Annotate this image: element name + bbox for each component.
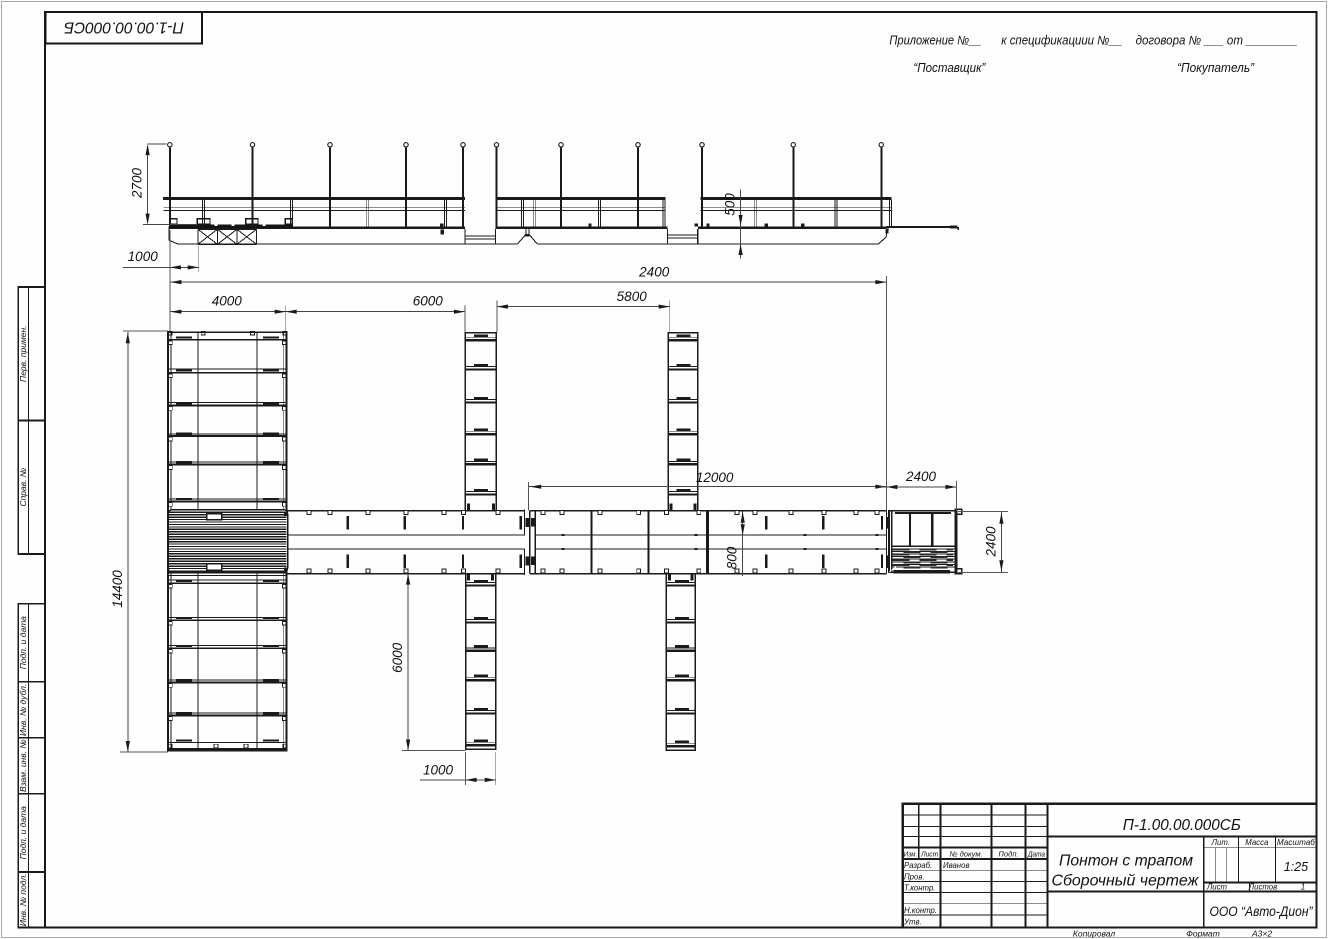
svg-text:Пров.: Пров. — [904, 872, 925, 881]
svg-text:№ докум.: № докум. — [949, 850, 982, 859]
svg-text:1000: 1000 — [128, 249, 159, 264]
svg-text:Листов: Листов — [1248, 883, 1277, 892]
svg-text:6000: 6000 — [390, 642, 405, 673]
svg-text:6000: 6000 — [413, 293, 444, 308]
svg-text:Дата: Дата — [1027, 850, 1045, 859]
svg-text:Разраб.: Разраб. — [904, 861, 932, 870]
svg-text:4000: 4000 — [212, 293, 243, 308]
svg-text:“Покупатель”: “Покупатель” — [1177, 61, 1255, 75]
svg-text:Лист: Лист — [920, 850, 938, 859]
svg-text:Лит.: Лит. — [1211, 838, 1230, 847]
svg-text:Масса: Масса — [1245, 838, 1269, 847]
svg-text:ООО “Авто-Дион”: ООО “Авто-Дион” — [1210, 903, 1314, 919]
svg-text:2400: 2400 — [638, 265, 670, 280]
svg-text:Копировал: Копировал — [1073, 929, 1115, 939]
svg-text:Инв. № дубл.: Инв. № дубл. — [18, 684, 28, 736]
svg-text:1: 1 — [1301, 883, 1305, 892]
svg-text:“Поставщик”: “Поставщик” — [913, 61, 986, 75]
svg-text:500: 500 — [723, 193, 738, 216]
svg-text:Приложение №__: Приложение №__ — [889, 33, 981, 47]
svg-text:14400: 14400 — [110, 570, 125, 608]
svg-text:Подп. и дата: Подп. и дата — [18, 616, 28, 669]
svg-text:А3×2: А3×2 — [1251, 929, 1272, 939]
svg-text:Взам. инв. №: Взам. инв. № — [18, 739, 28, 792]
svg-text:Инв. № подл.: Инв. № подл. — [18, 873, 28, 926]
svg-text:к спецификациии №__: к спецификациии №__ — [1001, 33, 1122, 47]
svg-text:5800: 5800 — [617, 289, 648, 304]
svg-text:2400: 2400 — [983, 526, 998, 558]
svg-text:П-1.00.00.000СБ: П-1.00.00.000СБ — [1123, 817, 1241, 834]
svg-text:Лист: Лист — [1206, 883, 1228, 892]
svg-text:Иванов: Иванов — [943, 861, 970, 870]
svg-text:2700: 2700 — [130, 167, 145, 199]
svg-text:Подп.: Подп. — [998, 850, 1018, 859]
svg-text:Понтон с трапом: Понтон с трапом — [1059, 852, 1193, 869]
svg-text:1000: 1000 — [423, 763, 454, 778]
svg-text:Т.контр.: Т.контр. — [904, 884, 935, 893]
svg-text:Формат: Формат — [1186, 929, 1220, 939]
svg-text:Справ. №: Справ. № — [18, 468, 28, 507]
svg-text:Подп. и дата: Подп. и дата — [18, 806, 28, 859]
svg-text:Изм.: Изм. — [904, 850, 918, 859]
svg-text:П-1.00.00.000СБ: П-1.00.00.000СБ — [64, 19, 184, 36]
svg-text:1:25: 1:25 — [1284, 860, 1308, 874]
svg-text:Сборочный чертеж: Сборочный чертеж — [1052, 872, 1200, 889]
svg-text:договора № ___ от ________: договора № ___ от ________ — [1136, 33, 1298, 47]
svg-text:800: 800 — [725, 546, 740, 569]
svg-text:2400: 2400 — [905, 469, 937, 484]
svg-text:Масштаб: Масштаб — [1277, 838, 1316, 847]
svg-text:Н.контр.: Н.контр. — [904, 906, 937, 915]
svg-text:12000: 12000 — [696, 470, 734, 485]
svg-text:Перв. примен.: Перв. примен. — [18, 325, 28, 382]
svg-text:Утв.: Утв. — [903, 917, 922, 926]
